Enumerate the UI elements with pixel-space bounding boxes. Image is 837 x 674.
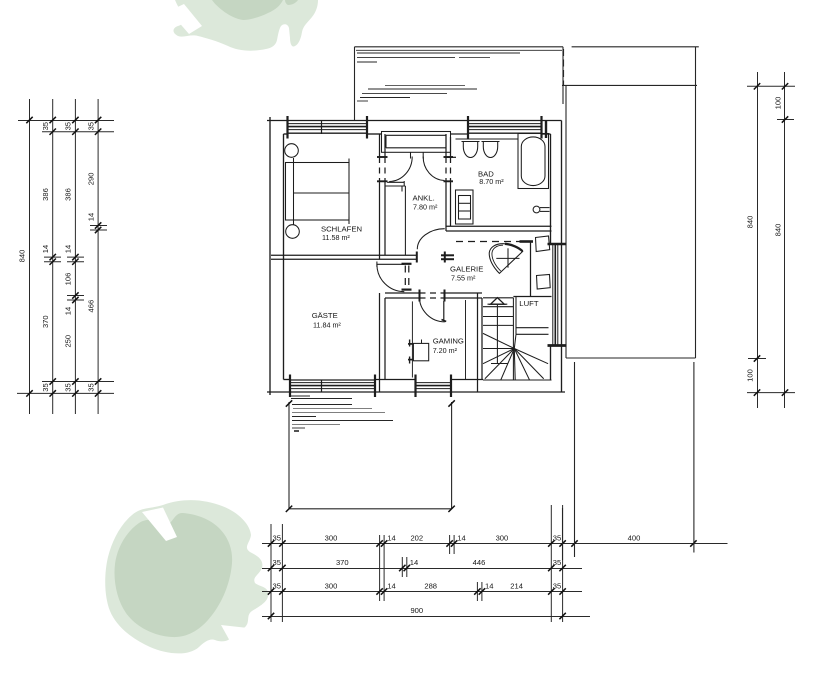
svg-text:840: 840 (746, 216, 755, 229)
svg-text:35: 35 (553, 558, 561, 567)
svg-text:11.84 m²: 11.84 m² (313, 321, 341, 330)
svg-text:14: 14 (41, 245, 50, 253)
svg-text:35: 35 (272, 534, 280, 543)
svg-text:446: 446 (473, 558, 486, 567)
svg-text:11.58 m²: 11.58 m² (322, 233, 350, 242)
svg-text:100: 100 (746, 369, 755, 382)
svg-text:14: 14 (410, 558, 418, 567)
svg-text:35: 35 (272, 558, 280, 567)
svg-text:35: 35 (553, 582, 561, 591)
svg-text:GAMING: GAMING (433, 337, 464, 346)
svg-text:LUFT: LUFT (519, 299, 539, 308)
svg-text:300: 300 (325, 534, 338, 543)
svg-text:300: 300 (496, 534, 509, 543)
svg-text:35: 35 (272, 582, 280, 591)
svg-text:400: 400 (628, 534, 641, 543)
svg-text:840: 840 (774, 224, 783, 237)
svg-text:35: 35 (553, 534, 561, 543)
svg-text:100: 100 (774, 97, 783, 110)
svg-text:35: 35 (86, 122, 95, 130)
svg-text:ANKL.: ANKL. (413, 194, 435, 203)
svg-text:106: 106 (64, 273, 73, 286)
svg-text:214: 214 (510, 582, 523, 591)
svg-text:35: 35 (41, 122, 50, 130)
svg-text:370: 370 (41, 315, 50, 328)
svg-text:14: 14 (64, 307, 73, 315)
svg-text:370: 370 (336, 558, 349, 567)
svg-text:14: 14 (387, 582, 395, 591)
svg-text:7.80 m²: 7.80 m² (413, 203, 438, 212)
svg-text:466: 466 (86, 300, 95, 313)
svg-text:35: 35 (41, 383, 50, 391)
svg-text:14: 14 (86, 213, 95, 221)
svg-text:GALERIE: GALERIE (450, 265, 483, 274)
svg-text:7.20 m²: 7.20 m² (433, 346, 458, 355)
svg-text:14: 14 (485, 582, 493, 591)
svg-text:386: 386 (64, 188, 73, 201)
svg-text:386: 386 (41, 188, 50, 201)
svg-text:840: 840 (18, 250, 27, 263)
svg-text:GÄSTE: GÄSTE (312, 311, 338, 320)
svg-text:35: 35 (86, 383, 95, 391)
svg-text:250: 250 (64, 335, 73, 348)
svg-text:900: 900 (410, 606, 423, 615)
svg-text:8.70 m²: 8.70 m² (479, 177, 504, 186)
svg-text:14: 14 (457, 534, 465, 543)
svg-text:35: 35 (64, 383, 73, 391)
svg-text:288: 288 (424, 582, 437, 591)
svg-text:7.55 m²: 7.55 m² (451, 274, 476, 283)
svg-text:35: 35 (64, 122, 73, 130)
svg-text:14: 14 (64, 245, 73, 253)
svg-text:14: 14 (387, 534, 395, 543)
svg-text:300: 300 (325, 582, 338, 591)
svg-text:290: 290 (86, 173, 95, 186)
svg-text:202: 202 (410, 534, 423, 543)
